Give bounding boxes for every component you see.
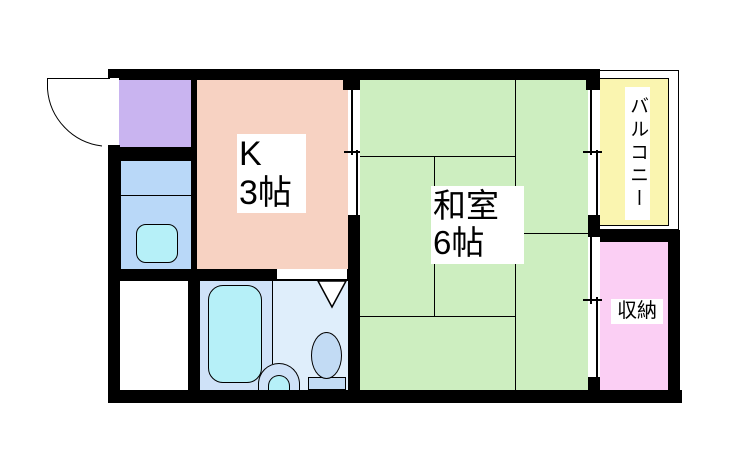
storage-name: 収納 (617, 300, 657, 322)
door-symbols-overlay (0, 0, 749, 464)
floor-plan: K 3帖 和室 6帖 収納 バルコニー (0, 0, 749, 464)
kitchen-name: K (239, 135, 306, 173)
label-balcony: バルコニー (625, 87, 650, 220)
label-kitchen: K 3帖 (237, 134, 306, 213)
japanese-room-size: 6帖 (433, 225, 524, 262)
kitchen-size: 3帖 (239, 174, 306, 212)
bathroom-door-v-mark (318, 281, 346, 307)
balcony-name: バルコニー (627, 96, 648, 211)
label-japanese-room: 和室 6帖 (431, 186, 524, 264)
japanese-room-name: 和室 (433, 188, 524, 225)
entry-door-swing-arc (48, 89, 103, 146)
label-storage: 収納 (611, 299, 663, 324)
